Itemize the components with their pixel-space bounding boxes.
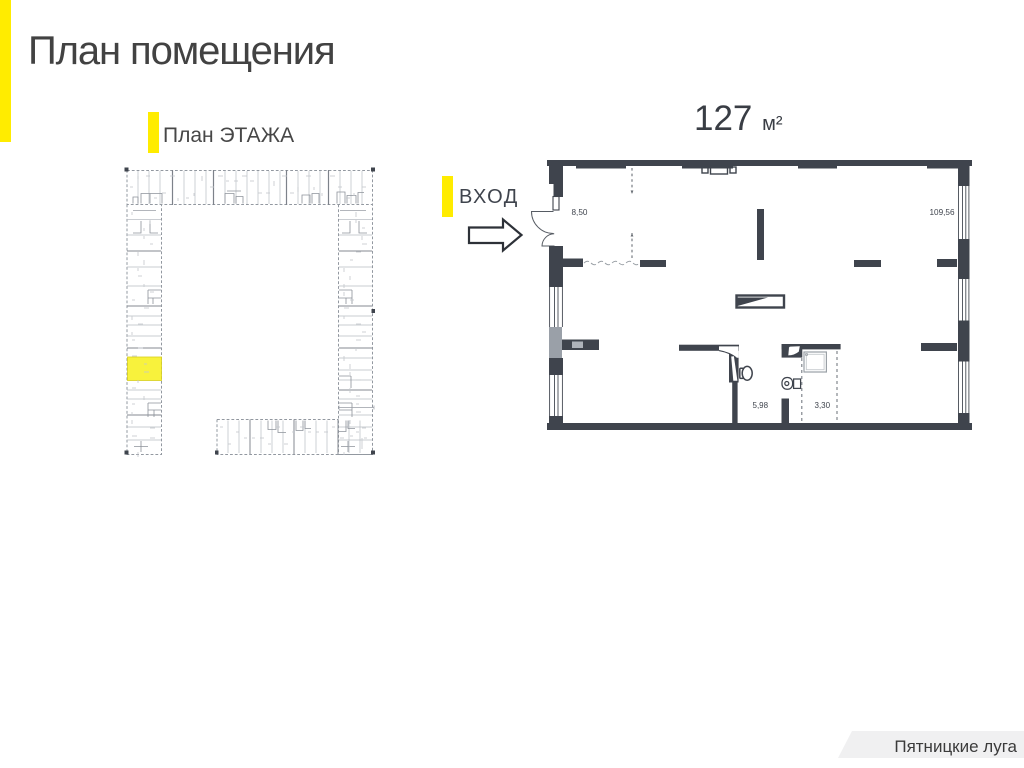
svg-text:3,30: 3,30 xyxy=(815,401,831,410)
svg-text:109,56: 109,56 xyxy=(930,208,955,217)
svg-text:5,98: 5,98 xyxy=(753,401,769,410)
svg-text:8,50: 8,50 xyxy=(572,208,588,217)
